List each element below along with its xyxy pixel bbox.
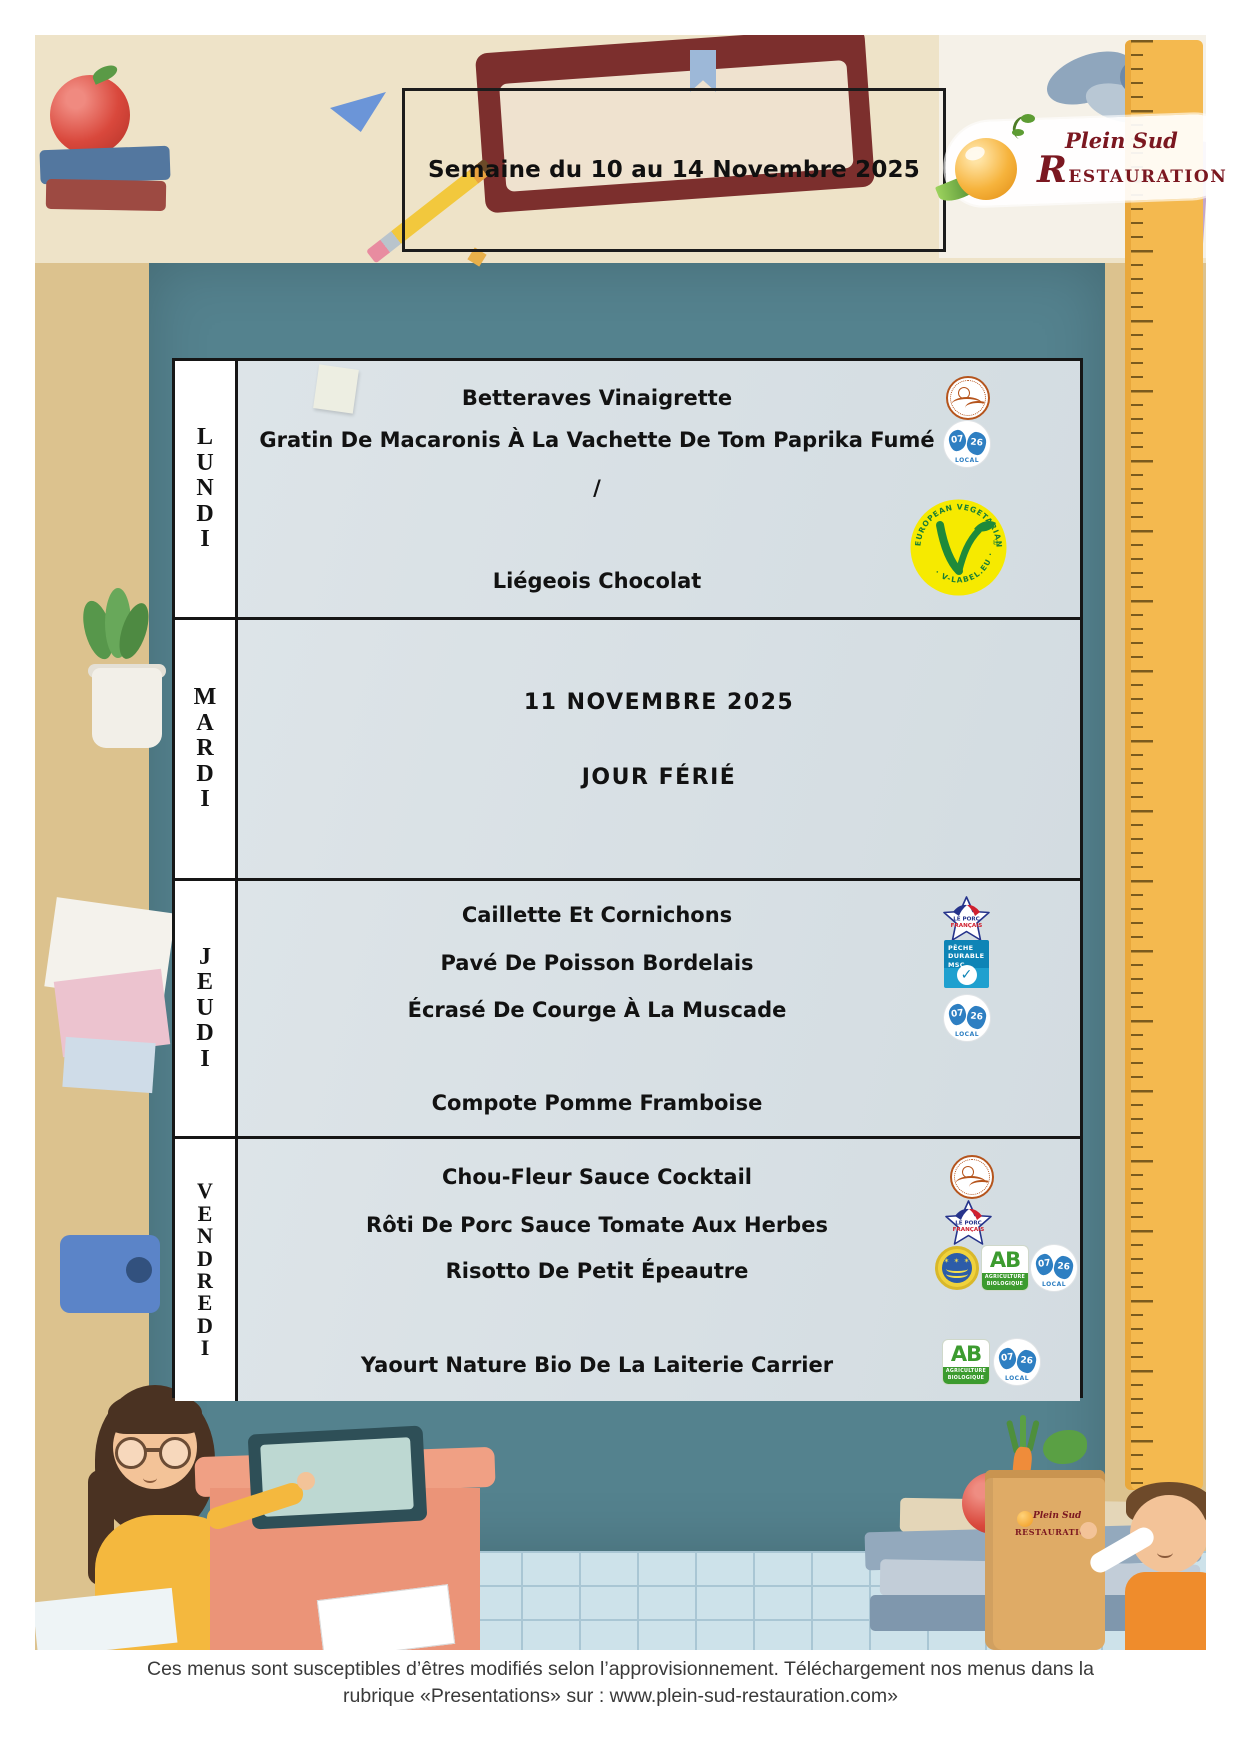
boy-illustration-hand xyxy=(1080,1522,1097,1539)
menu-item: Rôti De Porc Sauce Tomate Aux Herbes xyxy=(242,1211,952,1239)
day-label-mardi: MARDI xyxy=(175,620,238,878)
porc-francais-icon: LE PORC FRANÇAIS xyxy=(945,1200,992,1247)
msc-line2: DURABLE xyxy=(948,952,989,960)
dept-07-shape: 07 xyxy=(1035,1253,1055,1276)
ab-caption-line2: BIOLOGIQUE xyxy=(943,1376,989,1382)
dessert-icon-row: AB AGRICULTURE BIOLOGIQUE 07 26 LOCAL xyxy=(942,1339,1040,1385)
holiday-date: 11 NOVEMBRE 2025 xyxy=(242,689,1076,717)
boy-smile xyxy=(1157,1547,1173,1558)
day-label-text: JEUDI xyxy=(196,945,213,1072)
logo-fruit-icon xyxy=(955,138,1017,200)
bio-icon-row: ✶ ✶ ✶ AB AGRICULTURE BIOLOGIQUE 07 xyxy=(935,1245,1077,1291)
menu-item: Écrasé De Courge À La Muscade xyxy=(242,996,952,1024)
msc-line1: PÊCHE xyxy=(948,944,989,952)
menu-item: Betteraves Vinaigrette xyxy=(242,384,952,412)
menu-item: Pavé De Poisson Bordelais xyxy=(242,949,952,977)
dept-26-shape: 26 xyxy=(966,1005,987,1030)
local-07-26-icon: 07 26 LOCAL xyxy=(944,995,990,1041)
ab-acronym: AB xyxy=(943,1342,989,1366)
apple-illustration xyxy=(50,75,130,155)
plant-pot xyxy=(92,668,162,748)
footer: Ces menus sont susceptibles d’êtres modi… xyxy=(0,1650,1241,1755)
ab-acronym: AB xyxy=(982,1248,1028,1272)
svg-text:LE PORC: LE PORC xyxy=(953,917,980,923)
dept-26-shape: 26 xyxy=(1053,1255,1074,1280)
local-caption: LOCAL xyxy=(1031,1281,1077,1288)
bag-logo-fruit-icon xyxy=(1017,1511,1033,1527)
local-07-26-icon: 07 26 LOCAL xyxy=(994,1339,1040,1385)
menu-table: LUNDI Betteraves Vinaigrette Gratin De M… xyxy=(172,358,1083,1398)
msc-peche-durable-icon: PÊCHE DURABLE MSC ✓ xyxy=(944,940,989,988)
holiday-label: JOUR FÉRIÉ xyxy=(242,764,1076,792)
day-label-vendredi: VENDREDI xyxy=(175,1139,238,1401)
menu-item: Chou-Fleur Sauce Cocktail xyxy=(242,1163,952,1191)
eu-wave-glyph-2 xyxy=(946,1270,968,1278)
logo-name-line2: Restauration xyxy=(1037,149,1227,191)
boy-illustration-body xyxy=(1125,1572,1206,1650)
ab-caption: AGRICULTURE BIOLOGIQUE xyxy=(982,1273,1028,1290)
menu-item: Gratin De Macaronis À La Vachette De Tom… xyxy=(242,426,952,454)
bag-logo: Plein Sud Restauration xyxy=(1003,1505,1089,1561)
corner-papers-illustration xyxy=(35,1588,177,1650)
menu-item: Yaourt Nature Bio De La Laiterie Carrier xyxy=(242,1351,952,1379)
dept-07-shape: 07 xyxy=(998,1347,1018,1370)
seal-hill-glyph-2 xyxy=(965,401,986,415)
girl-glasses-bridge xyxy=(145,1448,161,1452)
ab-caption-line1: AGRICULTURE xyxy=(943,1369,989,1375)
v-label-vegetarian-icon: EUROPEAN VEGETARIAN UNION · V-LABEL.EU ·… xyxy=(910,499,1007,596)
logo-text: Plein Sud Restauration xyxy=(1037,128,1227,191)
book-stack-top-left-2 xyxy=(46,179,167,211)
seal-hill-glyph-2 xyxy=(969,1180,990,1194)
local-caption: LOCAL xyxy=(994,1375,1040,1382)
organic-eu-center: ✶ ✶ ✶ xyxy=(942,1253,972,1283)
eu-stars-glyph: ✶ ✶ ✶ xyxy=(942,1257,972,1265)
menu-content-mardi: 11 NOVEMBRE 2025 JOUR FÉRIÉ xyxy=(238,620,1080,878)
dept-07-shape: 07 xyxy=(948,429,968,452)
menu-item: Risotto De Petit Épeautre xyxy=(242,1257,952,1285)
menu-page: Plein Sud Restauration Semaine du 10 au … xyxy=(0,0,1241,1755)
day-label-text: LUNDI xyxy=(196,425,213,552)
sharpener-illustration xyxy=(60,1235,160,1313)
menu-item: Caillette Et Cornichons xyxy=(242,901,952,929)
artisan-seal-icon xyxy=(946,376,990,420)
menu-item: Compote Pomme Framboise xyxy=(242,1089,952,1117)
girl-smile xyxy=(143,1473,157,1483)
svg-text:FRANÇAIS: FRANÇAIS xyxy=(953,1227,985,1233)
girl-illustration-hand xyxy=(297,1472,315,1490)
footer-disclaimer-line1: Ces menus sont susceptibles d’êtres modi… xyxy=(0,1658,1241,1681)
svg-text:LE PORC: LE PORC xyxy=(955,1221,982,1227)
local-caption: LOCAL xyxy=(944,1031,990,1038)
brand-logo: Plein Sud Restauration xyxy=(945,112,1241,208)
menu-row-vendredi: VENDREDI Chou-Fleur Sauce Cocktail Rôti … xyxy=(175,1139,1080,1401)
week-title-box: Semaine du 10 au 14 Novembre 2025 xyxy=(402,88,946,252)
logo-sprig-icon xyxy=(1003,114,1037,146)
day-label-jeudi: JEUDI xyxy=(175,881,238,1136)
msc-fish-check-icon: ✓ xyxy=(957,965,977,985)
week-title: Semaine du 10 au 14 Novembre 2025 xyxy=(428,157,920,183)
bag-logo-line1: Plein Sud xyxy=(1033,1511,1081,1521)
girl-glasses-left xyxy=(115,1437,147,1469)
artisan-seal-inner xyxy=(950,380,986,416)
artisan-seal-icon xyxy=(950,1155,994,1199)
ab-caption-line1: AGRICULTURE xyxy=(982,1275,1028,1281)
dept-26-shape: 26 xyxy=(966,431,987,456)
papers-illustration-blue xyxy=(62,1037,155,1093)
footer-disclaimer-line2: rubrique «Presentations» sur : www.plein… xyxy=(0,1685,1241,1708)
organic-eu-seal-icon: ✶ ✶ ✶ xyxy=(935,1246,979,1290)
local-07-26-icon: 07 26 LOCAL xyxy=(1031,1245,1077,1291)
dept-07-shape: 07 xyxy=(948,1003,968,1026)
menu-row-jeudi: JEUDI Caillette Et Cornichons Pavé De Po… xyxy=(175,881,1080,1139)
girl-glasses-right xyxy=(159,1437,191,1469)
ruler-illustration xyxy=(1125,40,1203,1490)
menu-item-separator: / xyxy=(242,474,952,502)
ab-caption-line2: BIOLOGIQUE xyxy=(982,1282,1028,1288)
ab-bio-icon: AB AGRICULTURE BIOLOGIQUE xyxy=(942,1339,990,1385)
porc-francais-icon: LE PORC FRANÇAIS xyxy=(943,896,990,943)
menu-content-vendredi: Chou-Fleur Sauce Cocktail Rôti De Porc S… xyxy=(238,1139,1080,1401)
svg-text:FRANÇAIS: FRANÇAIS xyxy=(951,923,983,929)
ab-caption: AGRICULTURE BIOLOGIQUE xyxy=(943,1367,989,1384)
ab-bio-icon: AB AGRICULTURE BIOLOGIQUE xyxy=(981,1245,1029,1291)
svg-text:®: ® xyxy=(992,539,999,547)
dept-26-shape: 26 xyxy=(1016,1349,1037,1374)
menu-item: Liégeois Chocolat xyxy=(242,567,952,595)
menu-content-jeudi: Caillette Et Cornichons Pavé De Poisson … xyxy=(238,881,1080,1136)
menu-content-lundi: Betteraves Vinaigrette Gratin De Macaron… xyxy=(238,361,1080,617)
local-caption: LOCAL xyxy=(944,457,990,464)
menu-row-mardi: MARDI 11 NOVEMBRE 2025 JOUR FÉRIÉ xyxy=(175,620,1080,881)
day-label-text: MARDI xyxy=(194,685,217,812)
day-label-text: VENDREDI xyxy=(197,1180,213,1360)
artisan-seal-inner xyxy=(954,1159,990,1195)
menu-row-lundi: LUNDI Betteraves Vinaigrette Gratin De M… xyxy=(175,361,1080,620)
day-label-lundi: LUNDI xyxy=(175,361,238,617)
local-07-26-icon: 07 26 LOCAL xyxy=(944,421,990,467)
